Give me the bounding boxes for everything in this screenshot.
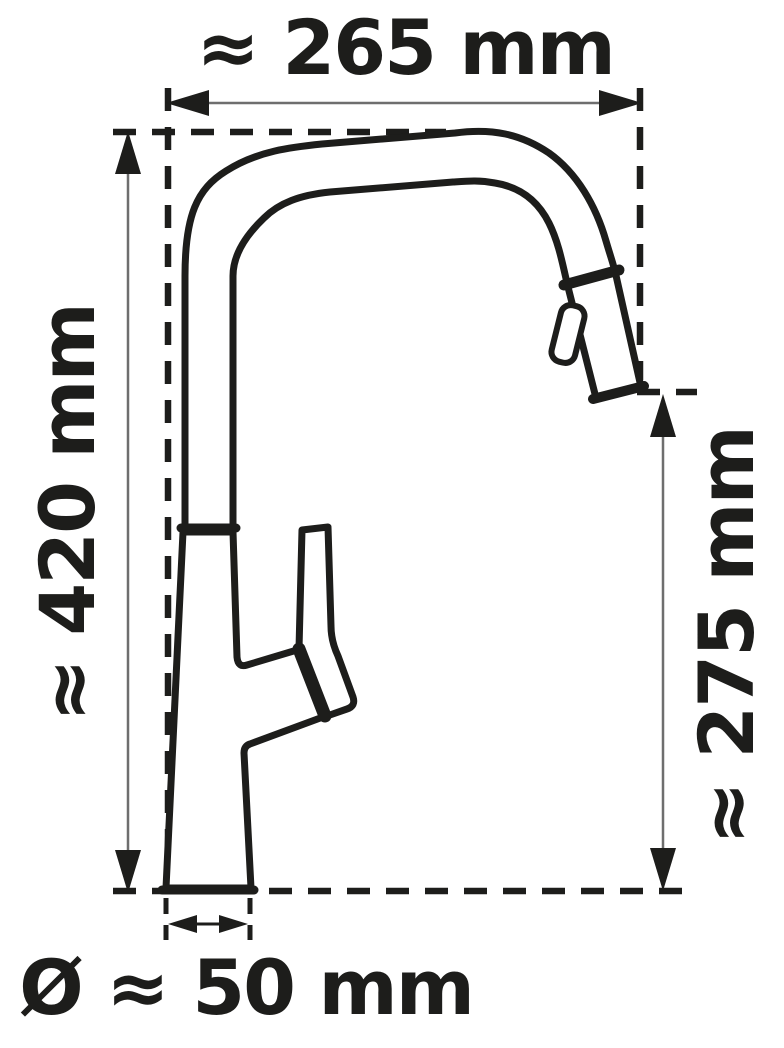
spray-head-button xyxy=(549,303,586,365)
faucet-spout xyxy=(185,131,615,532)
faucet-outline xyxy=(166,131,641,888)
dim-label-outlet-height: ≈ 275 mm xyxy=(689,427,765,845)
arrowhead-down-icon xyxy=(115,850,141,893)
arrowhead-up-icon xyxy=(115,131,141,174)
arrowhead-up-icon xyxy=(650,394,676,437)
dim-label-base-diameter: Ø ≈ 50 mm xyxy=(19,950,473,1026)
dim-label-overall-height: ≈ 420 mm xyxy=(30,304,106,722)
dim-arrow-base-50 xyxy=(168,915,248,933)
arrowhead-down-icon xyxy=(650,848,676,891)
dim-arrow-width-265 xyxy=(166,90,642,116)
dim-arrow-height-420 xyxy=(115,131,141,893)
arrowhead-left-icon xyxy=(168,915,197,933)
dim-arrow-outlet-275 xyxy=(650,394,676,891)
faucet-technical-drawing xyxy=(0,0,784,1048)
base-extension-lines xyxy=(166,898,250,940)
arrowhead-right-icon xyxy=(599,90,642,116)
dim-label-overall-width: ≈ 265 mm xyxy=(196,10,614,86)
arrowhead-right-icon xyxy=(219,915,248,933)
diagram-canvas: ≈ 265 mm ≈ 420 mm ≈ 275 mm Ø ≈ 50 mm xyxy=(0,0,784,1048)
arrowhead-left-icon xyxy=(166,90,209,116)
